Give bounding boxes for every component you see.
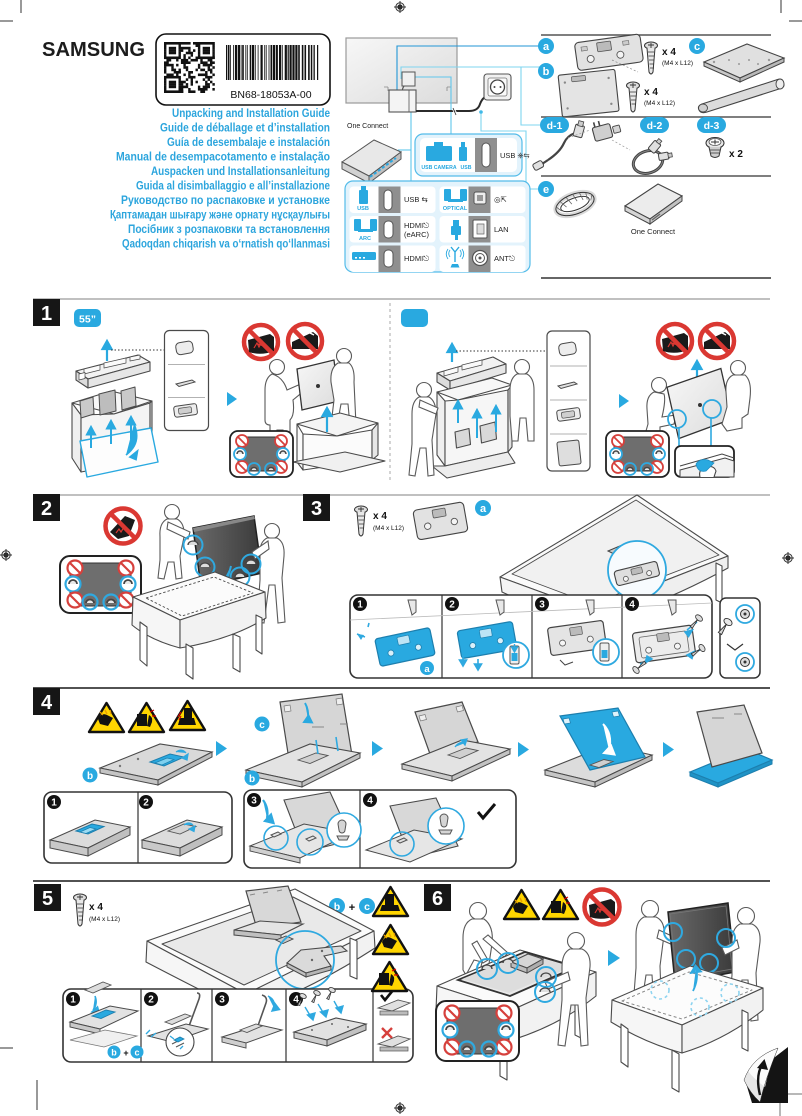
svg-text:One Connect: One Connect bbox=[631, 227, 676, 236]
svg-text:Qadoqdan chiqarish va o‘rnatis: Qadoqdan chiqarish va o‘rnatish qo‘llanm… bbox=[122, 237, 330, 251]
svg-text:Unpacking and Installation Gui: Unpacking and Installation Guide bbox=[172, 106, 330, 120]
svg-text:b: b bbox=[543, 66, 550, 78]
svg-text:c: c bbox=[134, 1048, 139, 1058]
svg-text:(eARC): (eARC) bbox=[404, 230, 430, 239]
svg-text:HDMI⎋: HDMI⎋ bbox=[404, 254, 430, 263]
svg-text:(M4 x L12): (M4 x L12) bbox=[89, 916, 120, 923]
svg-text:c: c bbox=[694, 41, 700, 53]
svg-text:+: + bbox=[123, 1048, 128, 1058]
svg-text:2: 2 bbox=[148, 995, 154, 1006]
svg-text:c: c bbox=[364, 901, 370, 913]
svg-text:One Connect: One Connect bbox=[347, 123, 388, 130]
svg-text:Guide de déballage et d’instal: Guide de déballage et d’installation bbox=[160, 121, 330, 135]
svg-text:3: 3 bbox=[311, 498, 322, 520]
svg-text:Auspacken und Installationsanl: Auspacken und Installationsanleitung bbox=[151, 164, 330, 178]
svg-text:6: 6 bbox=[432, 888, 443, 910]
svg-text:1: 1 bbox=[70, 995, 76, 1006]
svg-text:2: 2 bbox=[41, 498, 52, 520]
svg-text:ARC: ARC bbox=[359, 236, 371, 242]
svg-text:USB ⎈⇆: USB ⎈⇆ bbox=[500, 151, 531, 160]
svg-text:a: a bbox=[480, 503, 487, 515]
svg-text:4: 4 bbox=[367, 796, 373, 807]
svg-text:x 4: x 4 bbox=[89, 902, 103, 913]
svg-text:c: c bbox=[259, 720, 265, 731]
svg-text:b: b bbox=[111, 1048, 117, 1058]
svg-text:1: 1 bbox=[51, 798, 57, 809]
svg-text:d-1: d-1 bbox=[547, 120, 563, 132]
svg-text:d-3: d-3 bbox=[704, 120, 720, 132]
svg-text:x 4: x 4 bbox=[644, 87, 658, 98]
svg-text:USB: USB bbox=[461, 165, 472, 171]
svg-text:e: e bbox=[543, 184, 549, 196]
svg-text:Посібник з розпаковки та встан: Посібник з розпаковки та встановлення bbox=[128, 222, 330, 236]
svg-text:x 4: x 4 bbox=[373, 511, 387, 522]
svg-text:USB: USB bbox=[357, 206, 369, 212]
svg-text:Manual de desempacotamento e i: Manual de desempacotamento e instalação bbox=[116, 150, 330, 164]
svg-text:55”: 55” bbox=[79, 314, 96, 326]
svg-text:LAN: LAN bbox=[494, 225, 509, 234]
svg-text:ANT⎋: ANT⎋ bbox=[494, 254, 516, 263]
svg-text:x 2: x 2 bbox=[729, 149, 743, 160]
svg-text:d-2: d-2 bbox=[647, 120, 663, 132]
svg-text:(M4 x L12): (M4 x L12) bbox=[644, 100, 675, 107]
svg-text:3: 3 bbox=[251, 796, 257, 807]
svg-text:Қаптамадан шығару және орнату: Қаптамадан шығару және орнату нұсқаулығы bbox=[110, 208, 330, 222]
svg-text:Guida al disimballaggio e all’: Guida al disimballaggio e all’installazi… bbox=[136, 179, 330, 193]
svg-text:Руководство по распаковке и ус: Руководство по распаковке и установке bbox=[121, 193, 330, 207]
svg-text:USB CAMERA: USB CAMERA bbox=[421, 165, 456, 171]
svg-text:USB ⇆: USB ⇆ bbox=[404, 195, 429, 204]
svg-text:4: 4 bbox=[629, 600, 635, 611]
svg-text:(M4 x L12): (M4 x L12) bbox=[373, 525, 404, 532]
svg-text:HDMI⎋: HDMI⎋ bbox=[404, 221, 430, 230]
svg-text:Guía de desembalaje e instalac: Guía de desembalaje e instalación bbox=[167, 135, 330, 149]
svg-text:3: 3 bbox=[539, 600, 545, 611]
svg-text:1: 1 bbox=[41, 303, 52, 325]
svg-text:a: a bbox=[543, 41, 550, 53]
svg-text:1: 1 bbox=[357, 600, 363, 611]
svg-text:2: 2 bbox=[143, 798, 149, 809]
svg-text:b: b bbox=[249, 774, 255, 785]
svg-text:3: 3 bbox=[219, 995, 225, 1006]
svg-text:+: + bbox=[349, 902, 355, 914]
svg-text:◎⇱: ◎⇱ bbox=[494, 195, 508, 204]
svg-text:a: a bbox=[424, 664, 430, 675]
svg-text:b: b bbox=[87, 771, 93, 782]
svg-text:BN68-18053A-00: BN68-18053A-00 bbox=[230, 89, 311, 101]
svg-text:SAMSUNG: SAMSUNG bbox=[42, 38, 145, 61]
svg-text:(M4 x L12): (M4 x L12) bbox=[662, 60, 693, 67]
svg-text:4: 4 bbox=[41, 692, 53, 714]
svg-text:x 4: x 4 bbox=[662, 47, 676, 58]
svg-text:2: 2 bbox=[449, 600, 455, 611]
svg-text:5: 5 bbox=[42, 888, 53, 910]
svg-text:OPTICAL: OPTICAL bbox=[443, 206, 468, 212]
